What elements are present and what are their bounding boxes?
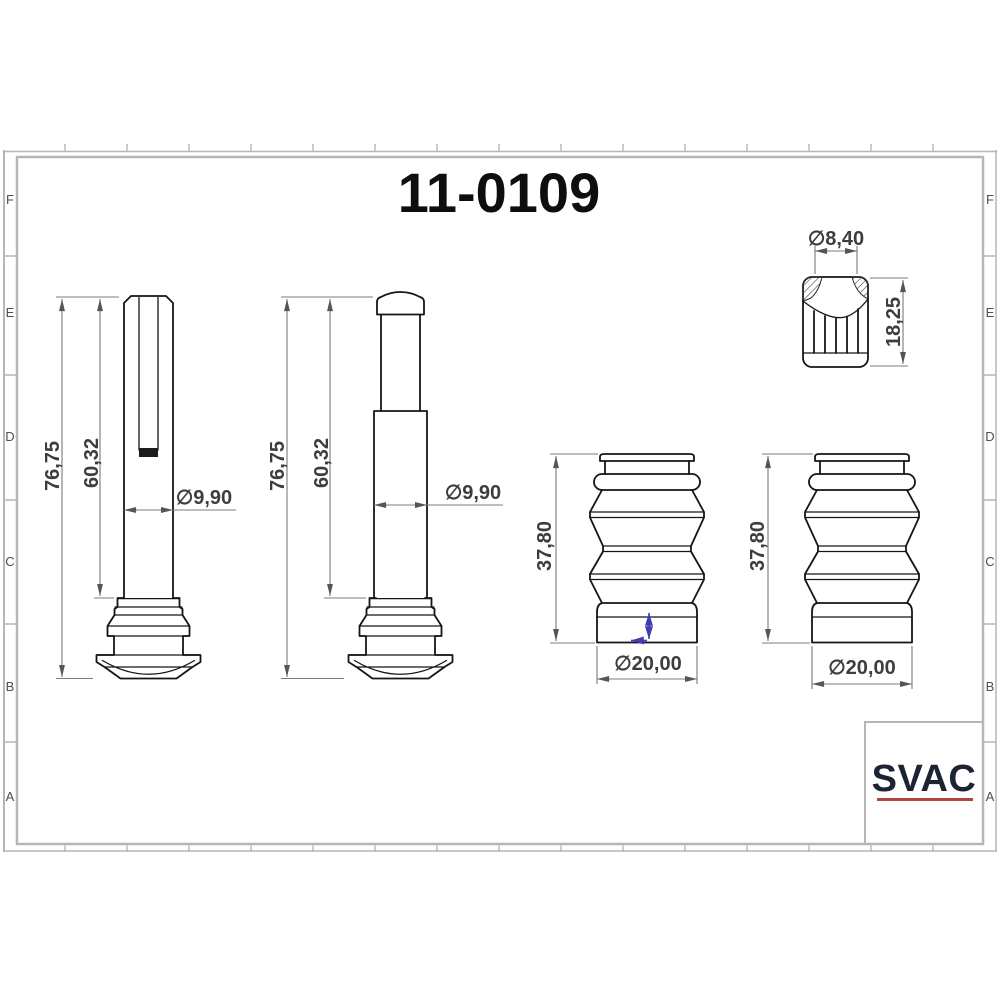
boot-left-view	[590, 454, 704, 643]
grid-row-label-right-B: B	[983, 680, 997, 694]
grid-row-label-right-F: F	[983, 193, 997, 207]
dim-text-diameter: ∅9,90	[445, 482, 501, 504]
pin-neck	[381, 315, 420, 411]
pin-slot	[139, 298, 158, 451]
dim-text-diameter: ∅20,00	[614, 653, 681, 675]
dim-text-diameter: ∅8,40	[808, 228, 864, 250]
grid-row-label-right-E: E	[983, 306, 997, 320]
dim-text-height: 18,25	[883, 297, 905, 347]
pin-flanged-base	[97, 598, 201, 679]
pin-shaft-outline	[124, 296, 173, 598]
grid-row-label-left-F: F	[3, 193, 17, 207]
grid-row-label-right-C: C	[983, 555, 997, 569]
drawing-number: 11-0109	[297, 160, 701, 225]
grid-row-label-left-B: B	[3, 680, 17, 694]
bushing-hatch-right	[852, 277, 868, 299]
bushing-hatch-left	[803, 277, 822, 301]
extension-lines	[550, 454, 697, 684]
pin-slot-bottom	[139, 448, 158, 457]
row-dividers-right	[983, 256, 996, 742]
pin-flanged-base	[349, 598, 453, 679]
logo-underline	[877, 798, 973, 801]
pin-cap	[377, 292, 424, 315]
row-dividers-left	[3, 256, 17, 742]
scanned-technical-drawing: { "sheet": { "title": "11-0109", "row_la…	[0, 0, 1000, 1000]
dim-text-overall: 76,75	[267, 441, 289, 491]
dim-text-height: 37,80	[747, 521, 769, 571]
bushing-view	[803, 277, 868, 367]
dim-text-diameter: ∅9,90	[176, 487, 232, 509]
dim-text-diameter: ∅20,00	[828, 657, 895, 679]
dim-boot-left: 37,80 ∅20,00	[534, 454, 697, 684]
boot-right-view	[805, 454, 919, 643]
grid-row-label-left-D: D	[3, 430, 17, 444]
ruler-ticks-top	[65, 144, 933, 151]
pin-capped-view	[349, 292, 453, 679]
dim-text-shaft: 60,32	[81, 438, 103, 488]
drawing-canvas: 76,75 60,32 ∅9,90 76,75 60,32 ∅9,90 37,8…	[0, 0, 1000, 1000]
dim-text-height: 37,80	[534, 521, 556, 571]
grid-row-label-right-A: A	[983, 790, 997, 804]
grid-row-label-left-C: C	[3, 555, 17, 569]
grid-row-label-right-D: D	[983, 430, 997, 444]
dim-text-shaft: 60,32	[311, 438, 333, 488]
dim-text-overall: 76,75	[42, 441, 64, 491]
company-logo: SVAC	[866, 758, 982, 801]
grid-row-label-left-E: E	[3, 306, 17, 320]
bushing-ribs	[814, 309, 858, 353]
dim-pin-capped: 76,75 60,32 ∅9,90	[267, 297, 503, 679]
grid-row-label-left-A: A	[3, 790, 17, 804]
